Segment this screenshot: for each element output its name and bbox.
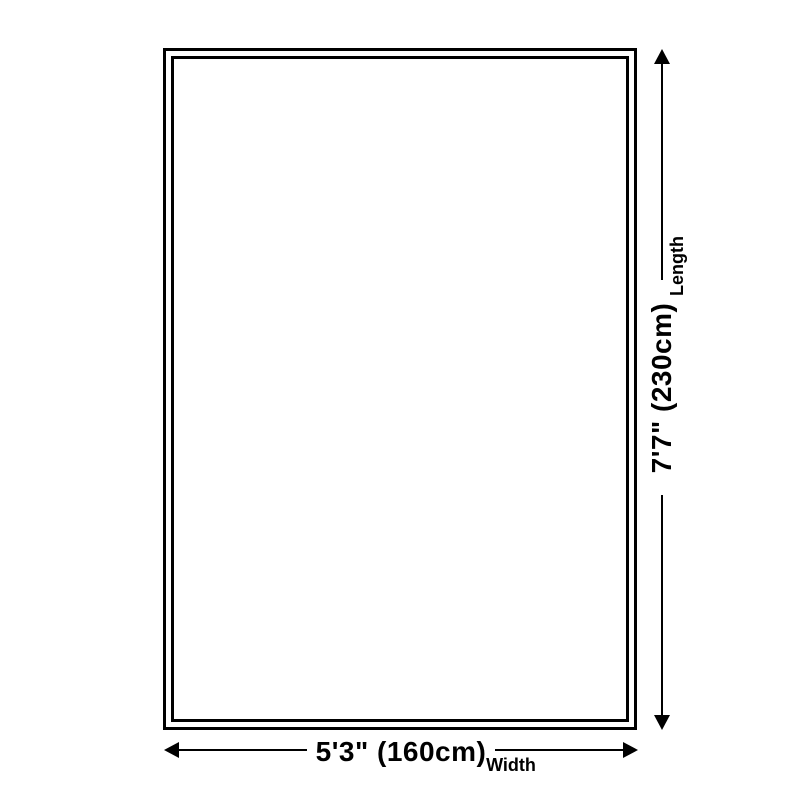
rug-outline [163,48,637,730]
width-dimension-line-right [495,749,628,752]
length-dimension-line-bottom [661,495,664,717]
width-arrow-left-icon [164,742,179,758]
length-arrow-down-icon [654,715,670,730]
length-value-label: 7'7" (230cm) [648,303,676,474]
length-axis-label: Length [668,236,686,296]
width-arrow-right-icon [623,742,638,758]
width-dimension-line-left [178,749,307,752]
size-diagram: Length 7'7" (230cm) 5'3" (160cm) Width [0,0,800,800]
length-dimension-line-top [661,62,664,280]
width-axis-label: Width [486,756,536,774]
rug-inner-outline [171,56,629,722]
width-value-label: 5'3" (160cm) [316,738,487,766]
